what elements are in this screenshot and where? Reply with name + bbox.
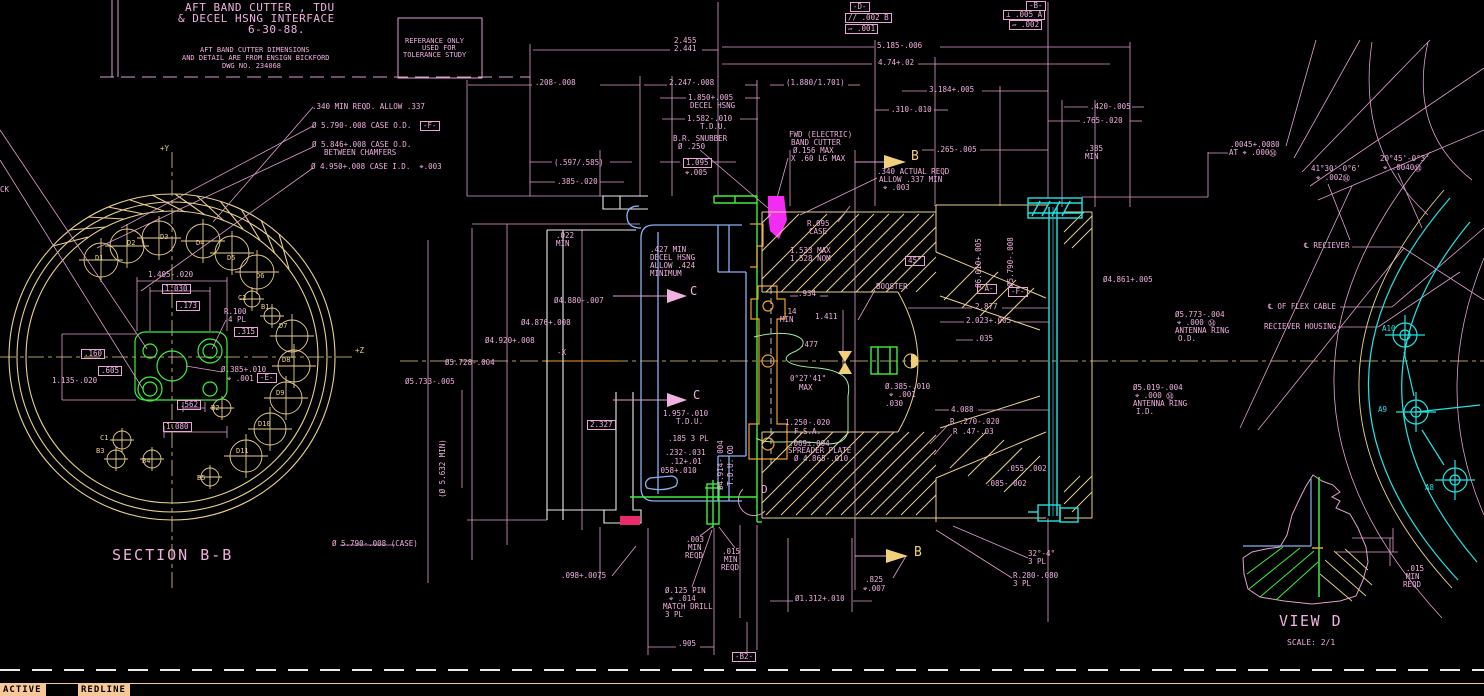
fcf-flatness-1: ▱ .001: [845, 24, 878, 34]
dim-label: 0°27'41": [790, 375, 826, 383]
view-d-caption: VIEW D: [1279, 612, 1342, 630]
dim-label: Ø .250: [678, 143, 705, 151]
dim-label: .420-.005: [1090, 103, 1131, 111]
status-bar: ACTIVE REDLINE: [0, 683, 1484, 696]
view-d-dims: [1336, 528, 1398, 566]
dim-label: B3: [96, 448, 104, 455]
dim-label: MINIMUM: [650, 270, 682, 278]
dim-label: Ø4.920+.008: [485, 337, 535, 345]
dim-label: .12+.01: [670, 458, 702, 466]
dim-label: Ø5.733-.005: [405, 378, 455, 386]
dim-label: +Y: [160, 145, 169, 153]
dim-label: D9: [276, 390, 284, 397]
dim-label: 4.088: [951, 406, 974, 414]
dim-label: 41°30'-0°6': [1311, 165, 1361, 173]
dim-label: ⌖.005: [685, 169, 707, 177]
dim-label: .160: [81, 349, 105, 359]
dim-label: .477: [800, 341, 818, 349]
dim-label: ℄ RECIEVER: [1304, 242, 1349, 250]
receiver-cyan-band: [1368, 198, 1480, 580]
layer-status-redline[interactable]: REDLINE: [78, 684, 130, 696]
dim-label: .765-.020: [1082, 117, 1123, 125]
section-arrow-label-b-top: B: [911, 150, 919, 164]
dim-label: REQD: [1403, 581, 1421, 589]
dim-label: ⌖ .001: [889, 391, 916, 399]
drawing-geometry: [0, 0, 1484, 696]
dim-label: 45°: [905, 256, 925, 266]
dim-label: 1.405-.020: [148, 271, 193, 279]
dim-label: .035: [975, 335, 993, 343]
dim-label: .310-.010: [891, 106, 932, 114]
dim-label: MAX: [799, 384, 813, 392]
dim-label: +Z: [355, 347, 364, 355]
dim-label: .098+.0075: [561, 572, 606, 580]
dim-label: 1.030: [162, 284, 191, 294]
dim-label: R .47-.03: [953, 428, 994, 436]
datum-d: -D-: [850, 2, 870, 12]
dim-label: 1.250-.020: [785, 419, 830, 427]
dim-label: D1: [95, 255, 103, 262]
view-d-geometry: [1243, 475, 1398, 604]
dim-label: B4: [142, 458, 150, 465]
view-d-blue: [1243, 479, 1311, 546]
dim-label: Ø4.880-.007: [554, 297, 604, 305]
dim-label: X .60 LG MAX: [791, 155, 845, 163]
datum-b2: -B2-: [732, 652, 756, 662]
dim-label: REQD: [721, 564, 739, 572]
dim-label: AT ⌖ .000Ⓜ: [1229, 149, 1276, 157]
flow-arrow-up: [838, 362, 852, 374]
detail-d-label: D: [761, 484, 768, 496]
dim-label: -X: [557, 349, 566, 357]
fcf-flatness-2: ▱ .002: [1009, 20, 1042, 30]
dim-label: D6: [256, 273, 264, 280]
dim-label: B2: [211, 405, 219, 412]
dim-label: .030: [885, 400, 903, 408]
dim-label: 3 PL: [1028, 558, 1046, 566]
dim-label: Ø 4.865-.010: [794, 455, 848, 463]
dim-label: R .270-.020: [950, 418, 1000, 426]
dim-label: RECIEVER HOUSING: [1264, 323, 1336, 331]
dim-label: C1: [100, 435, 108, 442]
dim-label: 1.080: [163, 422, 192, 432]
dim-label: C2: [238, 295, 246, 302]
dim-label: Ø4.861+.005: [1103, 276, 1153, 284]
dim-label: 3 PL: [665, 611, 683, 619]
dim-label: T.D.U. OD: [727, 445, 735, 486]
dim-label: D2: [127, 240, 135, 247]
dim-label: ⌖ .0040Ⓜ: [1383, 164, 1421, 172]
drawing-note-line2: AND DETAIL ARE FROM ENSIGN BICKFORD: [182, 54, 330, 62]
dim-label: D8: [282, 357, 290, 364]
dim-label: MIN: [780, 316, 794, 324]
dim-label: B1: [261, 304, 269, 311]
dim-label: 3 PL: [1013, 580, 1031, 588]
dim-label: .385-.020: [557, 178, 598, 186]
dim-label: (.597/.585): [554, 159, 604, 167]
fcf-perpendicularity: ⊥ .005 A: [1003, 10, 1045, 20]
dim-label: Ø4.914-.004: [717, 440, 725, 490]
datum-e: -E-: [257, 373, 277, 383]
dim-label: CASE: [809, 228, 827, 236]
dim-label: 3.184+.005: [929, 86, 974, 94]
dim-label: .185 3 PL: [668, 435, 709, 443]
section-arrow-label-c-top: C: [690, 285, 697, 298]
arrow-b-bottom: [886, 549, 908, 563]
dim-label: .058+.010: [656, 467, 697, 475]
dim-label: A8: [1425, 484, 1434, 492]
dim-label: D11: [236, 448, 249, 455]
dim-label: T.D.U.: [700, 123, 727, 131]
section-bb-caption: SECTION B-B: [112, 546, 233, 564]
dim-label: Ø1.312+.010: [795, 595, 845, 603]
dim-label: A10: [1382, 325, 1396, 333]
reference-note-line3: TOLERANCE STUDY: [403, 51, 466, 59]
dim-label: T.D.U.: [676, 418, 703, 426]
dim-label: BETWEEN CHAMFERS: [324, 149, 396, 157]
tdu-mount-plate: [135, 332, 227, 401]
dim-label: 4.74+.02: [878, 59, 914, 67]
dim-label: .265-.005: [936, 146, 977, 154]
dim-label: D3: [160, 234, 168, 241]
dim-label: 20°45'-0°3': [1380, 155, 1430, 163]
seal-highlight: [620, 516, 640, 525]
dim-label: REQD: [685, 552, 703, 560]
dim-label: 1.528 NOM: [790, 255, 831, 263]
dim-label: Ø6.010+.005: [975, 238, 983, 288]
arrow-c-bottom: [667, 393, 687, 407]
datum-f: -F-: [420, 121, 440, 131]
dim-label: BOOSTER: [876, 283, 908, 291]
flow-arrow-down: [838, 351, 852, 362]
dim-label: 5.185-.006: [877, 42, 922, 50]
dim-label: ⌖ .002Ⓜ: [1316, 174, 1350, 182]
dim-label: I.D.: [1136, 408, 1154, 416]
dim-label: 1.095: [683, 158, 712, 168]
section-bb-geometry: [0, 107, 395, 588]
dim-label: ⌖.007: [863, 585, 885, 593]
dim-label: .315: [234, 327, 258, 337]
dim-label: .208-.008: [535, 79, 576, 87]
dim-label: 1.135-.020: [52, 377, 97, 385]
dim-label: ⌖ .003: [883, 184, 910, 192]
extension-lines: [428, 2, 1208, 655]
dim-label: Ø 4.950+.008 CASE I.D. ⌖.003: [311, 163, 442, 171]
section-arrow-label-b-bottom: B: [914, 546, 922, 560]
dim-label: .934: [798, 290, 816, 298]
dim-label: MIN: [556, 240, 570, 248]
dim-label: (Ø 5.632 MIN): [439, 439, 447, 498]
arrow-c-top: [667, 289, 687, 303]
fcf-parallelism: // .002 B: [845, 13, 892, 23]
snubber-highlight: [768, 196, 787, 239]
dim-label: 2.247-.008: [669, 79, 714, 87]
dim-label: .340 MIN REQD. ALLOW .337: [312, 103, 425, 111]
dim-label: A9: [1378, 406, 1387, 414]
dim-label: Ø5.728-.004: [445, 359, 495, 367]
dim-label: 4 PL: [228, 316, 246, 324]
datum-a: -A-: [977, 284, 997, 294]
dim-label: D10: [258, 421, 271, 428]
dim-label: B5: [197, 475, 205, 482]
section-arrow-label-c-bottom: C: [693, 389, 700, 402]
dim-label: D4: [196, 240, 204, 247]
dim-label: .055-.002: [1006, 465, 1047, 473]
drawing-note-line1: AFT BAND CUTTER DIMENSIONS: [200, 46, 310, 54]
dim-label: D7: [279, 323, 287, 330]
cad-drawing-screen: AFT BAND CUTTER , TDU & DECEL HSNG INTER…: [0, 0, 1484, 696]
dim-label: .562: [177, 400, 201, 410]
layer-status-active[interactable]: ACTIVE: [0, 684, 46, 696]
view-d-outline: [1243, 475, 1368, 604]
drawing-note-line3: DWG NO. 234068: [222, 62, 281, 70]
dim-label: F.S.A.: [794, 428, 821, 436]
dim-label: 2.023+.005: [966, 317, 1011, 325]
dim-label: 2.441: [674, 45, 697, 53]
dim-label: Ø 5.790-.008 (CASE): [332, 540, 418, 548]
dim-label: CK: [0, 186, 9, 194]
dim-label: Ø 5.790-.008 CASE O.D.: [312, 122, 411, 130]
dim-label: Ø5.790-.008: [1007, 237, 1015, 287]
view-d-green: [1247, 477, 1319, 600]
view-d-scale: SCALE: 2/1: [1287, 638, 1335, 647]
dim-label: MIN: [1085, 153, 1099, 161]
dim-label: .173: [176, 301, 200, 311]
dim-label: O.D.: [1178, 335, 1196, 343]
dim-label: 1.411: [815, 313, 838, 321]
dim-label: .825: [865, 576, 883, 584]
leader-lines: [612, 150, 1228, 587]
datum-f-2: -F-: [1008, 287, 1028, 297]
dim-label: ℄ OF FLEX CABLE: [1268, 303, 1336, 311]
dim-label: 2.877: [975, 303, 998, 311]
dim-label: .905: [678, 640, 696, 648]
drawing-title-date: 6-30-88.: [248, 23, 305, 36]
dim-label: ⌖ .001: [227, 375, 254, 383]
section-centerlines: [0, 152, 352, 588]
dim-label: 2.327: [587, 420, 616, 430]
dim-label: .085-.002: [986, 480, 1027, 488]
dim-label: .232-.031: [665, 449, 706, 457]
dim-label: Ø4.876+.008: [521, 319, 571, 327]
dim-label: DECEL HSNG: [690, 102, 735, 110]
dim-label: D5: [227, 255, 235, 262]
dim-label: (1.880/1.701): [786, 79, 845, 87]
dim-label: .605: [98, 366, 122, 376]
